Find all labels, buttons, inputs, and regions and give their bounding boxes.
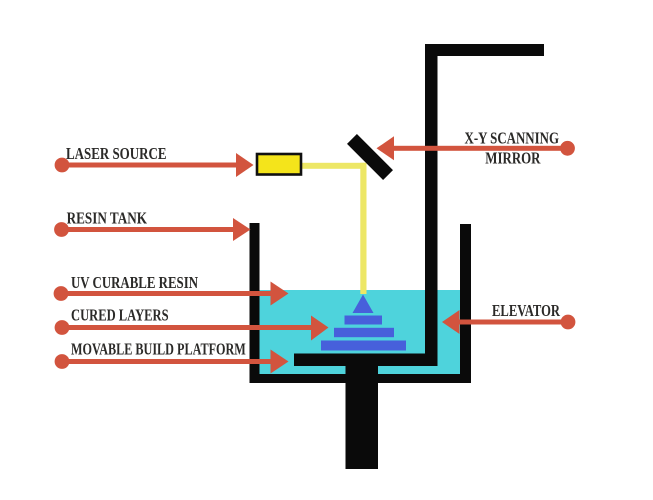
svg-text:MOVABLE BUILD PLATFORM: MOVABLE BUILD PLATFORM	[71, 340, 246, 359]
svg-text:RESIN TANK: RESIN TANK	[67, 209, 148, 228]
svg-text:UV CURABLE RESIN: UV CURABLE RESIN	[71, 273, 198, 292]
svg-text:X-Y SCANNING: X-Y SCANNING	[465, 128, 560, 147]
svg-text:ELEVATOR: ELEVATOR	[492, 301, 561, 320]
svg-text:CURED LAYERS: CURED LAYERS	[71, 306, 169, 325]
svg-text:MIRROR: MIRROR	[485, 149, 541, 168]
svg-text:LASER SOURCE: LASER SOURCE	[66, 144, 167, 163]
